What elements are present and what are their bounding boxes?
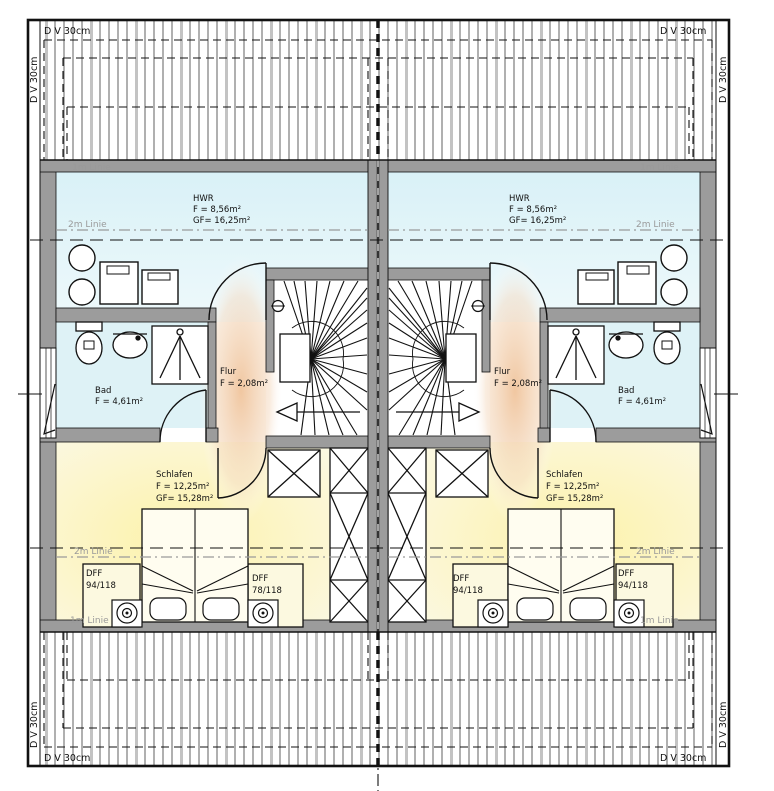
label-schlafen-gross: GF= 15,28m² [546,494,603,504]
label-hwr-name: HWR [509,194,530,204]
dv-label-top-left: D V 30cm [44,26,90,37]
guide-label-2m-bottom-left: 2m Linie [74,547,113,557]
label-bad-area: F = 4,61m² [618,397,666,407]
label-flur-name: Flur [494,367,511,377]
guide-label-1m-bottom-right: 1m Linie [640,616,679,626]
label-dff-inner-size: 94/118 [453,586,483,596]
label-schlafen-area: F = 12,25m² [546,482,599,492]
dv-label-top-right: D V 30cm [660,26,706,37]
label-dff-inner-size: 78/118 [252,586,282,596]
dv-label-right-bottom-rotated: D V 30cm [718,702,729,748]
guide-label-2m-top-right: 2m Linie [636,220,675,230]
guide-label-1m-top-left: 1m Linie [72,163,111,173]
unit-right-geometry [388,160,738,632]
label-dff-outer-size: 94/118 [86,581,116,591]
label-hwr-area: F = 8,56m² [509,205,557,215]
label-flur-name: Flur [220,367,237,377]
dv-label-left-bottom-rotated: D V 30cm [29,702,40,748]
label-dff-outer-size: 94/118 [618,581,648,591]
label-schlafen-name: Schlafen [546,470,583,480]
label-bad-area: F = 4,61m² [95,397,143,407]
label-bad-name: Bad [95,386,111,396]
label-flur-area: F = 2,08m² [220,379,268,389]
guide-label-2m-top-left: 2m Linie [68,220,107,230]
dv-label-bottom-left: D V 30cm [44,753,90,764]
unit-left-geometry [18,160,368,632]
guide-label-1m-top-right: 1m Linie [640,163,679,173]
label-dff-outer: DFF [618,569,634,579]
dv-label-right-top-rotated: D V 30cm [718,57,729,103]
dv-label-left-top-rotated: D V 30cm [29,57,40,103]
floor-plan-page: D V 30cm D V 30cm D V 30cm D V 30cm D V … [0,0,774,791]
guide-label-1m-bottom-left: 1m Linie [70,616,109,626]
label-bad-name: Bad [618,386,634,396]
label-schlafen-name: Schlafen [156,470,193,480]
label-dff-outer: DFF [86,569,102,579]
label-schlafen-area: F = 12,25m² [156,482,209,492]
dv-label-bottom-right: D V 30cm [660,753,706,764]
label-hwr-gross: GF= 16,25m² [193,216,250,226]
label-hwr-area: F = 8,56m² [193,205,241,215]
label-schlafen-gross: GF= 15,28m² [156,494,213,504]
label-flur-area: F = 2,08m² [494,379,542,389]
label-hwr-gross: GF= 16,25m² [509,216,566,226]
label-dff-inner: DFF [453,574,469,584]
floor-plan-drawing: D V 30cm D V 30cm D V 30cm D V 30cm D V … [0,0,774,791]
label-dff-inner: DFF [252,574,268,584]
guide-label-2m-bottom-right: 2m Linie [636,547,675,557]
label-hwr-name: HWR [193,194,214,204]
